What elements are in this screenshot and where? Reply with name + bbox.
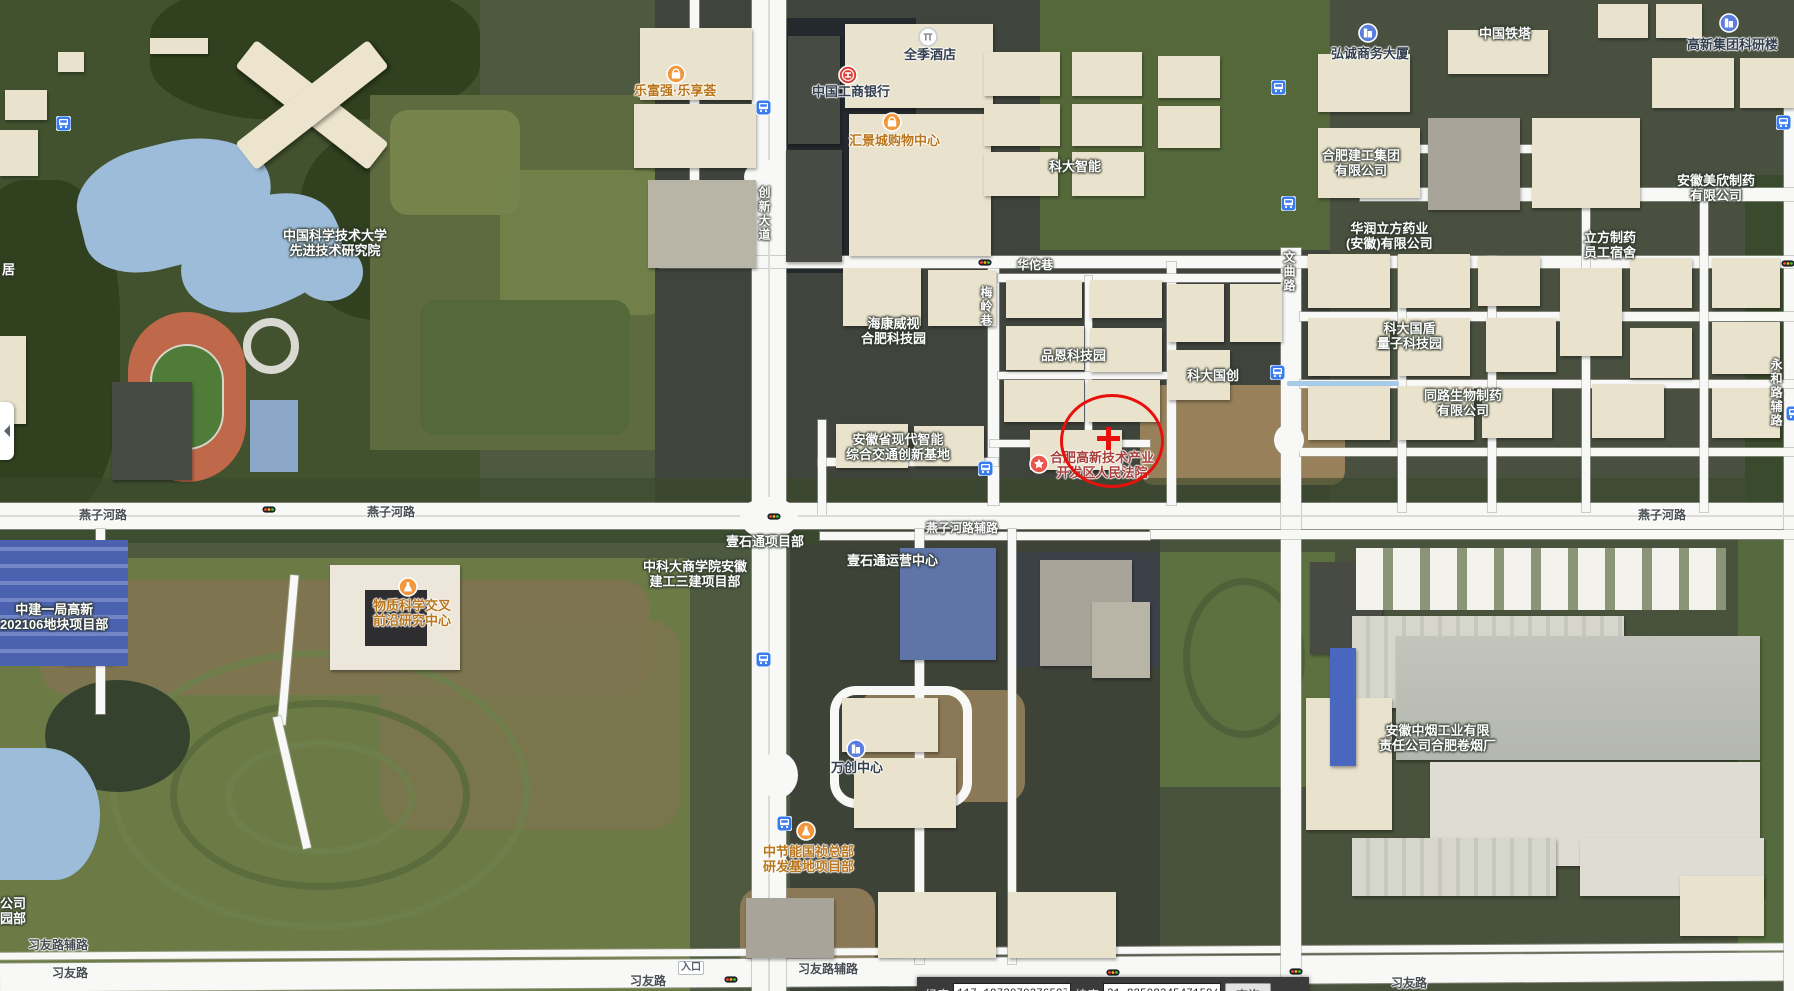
selection-crosshair <box>1106 427 1111 450</box>
collapse-arrow-icon <box>4 425 10 437</box>
shape-map-shape <box>918 27 938 47</box>
shape-bldg <box>984 104 1060 146</box>
label-wuzhi-center[interactable]: 物质科学交叉 前沿研究中心 <box>373 598 451 628</box>
shape-map-shape <box>987 261 990 264</box>
road-yanzihe-left: 燕子河路 <box>79 508 127 523</box>
shape-map-shape <box>781 820 788 823</box>
shape-map-shape <box>1289 968 1303 975</box>
label-yishitong-ops[interactable]: 壹石通运营中心 <box>847 553 938 568</box>
label-tobacco-factory[interactable]: 安徽中烟工业有限 责任公司合肥卷烟厂 <box>1379 723 1496 753</box>
shape-bldg <box>112 382 192 480</box>
shape-map-shape <box>59 125 61 127</box>
shape-map-shape <box>1364 29 1367 38</box>
road-meiling-lane: 梅岭巷 <box>978 286 993 328</box>
shape-map-shape <box>64 125 66 127</box>
road-chuangxin-dadao: 创新大道 <box>756 186 771 242</box>
shape-bldg <box>1230 284 1282 342</box>
coordinate-toolbar: 经度 纬度 查询 <box>917 977 1309 991</box>
road-xiyou-mid: 习友路 <box>630 974 666 989</box>
shape-bldg <box>0 130 38 176</box>
label-wanchuang[interactable]: 万创中心 <box>831 760 883 775</box>
shape-map-shape <box>929 35 931 41</box>
shape-lake <box>0 748 100 880</box>
shape-map-shape <box>262 506 276 513</box>
label-china-tower[interactable]: 中国铁塔 <box>1479 26 1531 41</box>
label-meixin-pharma[interactable]: 安徽美欣制药 有限公司 <box>1677 173 1755 203</box>
shape-bldg <box>1072 52 1142 96</box>
label-tonglu-bio[interactable]: 同路生物制药 有限公司 <box>1424 388 1502 418</box>
shape-map-shape <box>1358 23 1378 43</box>
shape-bldg <box>984 152 1058 196</box>
shape-map-shape <box>978 461 993 476</box>
shape-map-shape <box>764 661 766 663</box>
shape-map-shape <box>398 577 418 597</box>
latitude-label: 纬度 <box>1075 986 1099 991</box>
shape-bldg <box>1318 54 1410 112</box>
shape-map-shape <box>1784 124 1786 126</box>
shape-map-shape <box>1274 89 1276 91</box>
road-xiyou-fulu-mid: 习友路辅路 <box>798 962 858 977</box>
shape-bldg <box>1712 258 1780 308</box>
road-wenqu: 文曲路 <box>1281 251 1296 293</box>
shape-map-shape <box>978 259 992 266</box>
shape-map-shape <box>733 978 736 981</box>
shape-map-shape <box>1289 205 1291 207</box>
shape-map-shape <box>756 652 771 667</box>
shape-map-shape <box>760 656 767 659</box>
satellite-map[interactable]: 经度 纬度 查询 中国科学技术大学 先进技术研究院乐富强·乐享荟中国工商银行全季… <box>0 0 1794 991</box>
shape-bldg <box>1008 892 1116 958</box>
shape-bldg <box>1680 876 1764 936</box>
shape-map-shape <box>1790 262 1793 265</box>
selection-circle <box>1060 394 1164 488</box>
shape-map-shape <box>1115 971 1118 974</box>
shape-bldg <box>1090 280 1162 318</box>
shape-map-shape <box>1783 262 1786 265</box>
shape-bldg <box>1630 328 1692 378</box>
shape-bldg <box>58 52 84 72</box>
shape-map-shape <box>981 470 983 472</box>
shape-road <box>1784 95 1794 991</box>
shape-bldg <box>1740 58 1794 108</box>
shape-bldg <box>1356 548 1726 610</box>
shape-map-shape <box>1285 200 1292 203</box>
shape-bldg <box>1592 384 1664 438</box>
label-pinen-park[interactable]: 品恩科技园 <box>1041 348 1106 363</box>
shape-map-shape <box>724 976 738 983</box>
shape-bldg <box>1168 284 1224 342</box>
shape-terr <box>420 300 630 435</box>
shape-map-shape <box>984 261 987 264</box>
shape-map-shape <box>1108 971 1111 974</box>
shape-map-shape <box>856 747 860 754</box>
label-zhongkeda-biz[interactable]: 中科大商学院安徽 建工三建项目部 <box>643 559 747 589</box>
shape-map-shape <box>767 513 781 520</box>
shape-map-shape <box>1787 262 1790 265</box>
shape-map-shape <box>1278 374 1280 376</box>
label-keda-zhineng[interactable]: 科大智能 <box>1049 159 1101 174</box>
shape-rbulge <box>758 752 798 798</box>
shape-terr <box>225 740 415 855</box>
shape-map-shape <box>1106 969 1120 976</box>
label-yishitong-proj[interactable]: 壹石通项目部 <box>726 534 804 549</box>
shape-map-shape <box>268 508 271 511</box>
shape-map-shape <box>1112 971 1115 974</box>
shape-map-shape <box>888 120 896 126</box>
label-lifang-dorm[interactable]: 立方制药 员工宿舍 <box>1584 230 1636 260</box>
shape-map-shape <box>1273 374 1275 376</box>
shape-court <box>250 400 298 472</box>
shape-bldg <box>150 38 208 54</box>
shape-map-shape <box>845 76 851 78</box>
shape-map-shape <box>264 508 267 511</box>
shape-bldg <box>984 52 1060 96</box>
shape-map-shape <box>1790 410 1794 413</box>
road-xiyou-right: 习友路 <box>1391 976 1427 991</box>
shape-bldg <box>1652 58 1734 108</box>
shape-map-shape <box>1368 31 1372 38</box>
shape-map-shape <box>672 72 680 78</box>
shape-bldg <box>634 104 756 168</box>
label-hefei-jiangong[interactable]: 合肥建工集团 有限公司 <box>1322 148 1400 178</box>
shape-bldg <box>1006 280 1082 318</box>
label-ustc-institute[interactable]: 中国科学技术大学 先进技术研究院 <box>283 228 387 258</box>
road-yanzihe-mid: 燕子河路 <box>367 505 415 520</box>
shape-rline <box>768 0 770 991</box>
shape-road <box>1150 530 1794 539</box>
label-huijing-mall[interactable]: 汇景城购物中心 <box>849 133 940 148</box>
shape-map-shape <box>271 508 274 511</box>
shape-bldg <box>746 898 834 958</box>
label-keda-guodun[interactable]: 科大国盾 量子科技园 <box>1377 321 1442 351</box>
shape-bldg <box>1478 256 1540 306</box>
shape-map-shape <box>785 825 787 827</box>
shape-map-shape <box>986 470 988 472</box>
shape-map-shape <box>1779 124 1781 126</box>
shape-map-shape <box>1729 21 1733 28</box>
label-zhongjieneng[interactable]: 中节能国祯总部 研发基地项目部 <box>763 844 854 874</box>
label-hongcheng-tower[interactable]: 弘诚商务大厦 <box>1331 46 1409 61</box>
shape-bldg <box>1532 118 1640 208</box>
shape-road <box>1281 248 1301 991</box>
shape-road <box>1700 201 1708 512</box>
label-entrance: 入口 <box>678 961 704 975</box>
shape-bldg <box>1158 106 1220 148</box>
shape-map-shape <box>1279 89 1281 91</box>
shape-map-shape <box>773 515 776 518</box>
shape-bldg <box>1072 104 1142 146</box>
panel-collapse-tab[interactable] <box>0 402 14 460</box>
shape-map-shape <box>1291 970 1294 973</box>
label-partial-yuanbu: 园部 <box>0 911 26 926</box>
shape-map-shape <box>838 65 858 85</box>
shape-map-shape <box>1274 369 1281 372</box>
shape-map-shape <box>764 109 766 111</box>
shape-bldg <box>1630 258 1692 308</box>
shape-map-shape <box>1776 115 1791 130</box>
shape-map-shape <box>780 825 782 827</box>
longitude-label: 经度 <box>925 986 949 991</box>
shape-map-shape <box>666 64 686 84</box>
shape-map-shape <box>1295 970 1298 973</box>
shape-bldg <box>1398 254 1470 308</box>
shape-map-shape <box>1270 365 1285 380</box>
shape-bldg <box>878 892 996 958</box>
road-huatuo-lane: 华佗巷 <box>1017 258 1053 273</box>
shape-map-shape <box>925 35 927 41</box>
label-icbc[interactable]: 中国工商银行 <box>812 84 890 99</box>
shape-map-shape <box>776 515 779 518</box>
shape-bldg <box>1560 268 1622 356</box>
shape-map-shape <box>980 261 983 264</box>
label-hikvision[interactable]: 海康威视 合肥科技园 <box>861 316 926 346</box>
label-zhongjian[interactable]: 中建一局高新 202106地块项目部 <box>0 602 108 632</box>
shape-bldg <box>1598 4 1648 38</box>
shape-map-shape <box>846 739 866 759</box>
shape-map-shape <box>1725 19 1728 28</box>
shape-map-shape <box>1271 80 1286 95</box>
shape-bldg <box>1486 318 1556 372</box>
shape-road <box>998 372 1170 379</box>
shape-map-shape <box>852 745 855 754</box>
shape-bldg <box>1308 254 1390 308</box>
shape-map-shape <box>760 104 767 107</box>
shape-map-shape <box>796 821 816 841</box>
shape-bldg <box>1092 602 1150 678</box>
shape-rline <box>0 515 1794 517</box>
label-lefuqiang[interactable]: 乐富强·乐享荟 <box>634 83 716 98</box>
road-yonghe-fulu: 永和路辅路 <box>1768 358 1783 428</box>
label-huarun-lifang[interactable]: 华润立方药业 (安徽)有限公司 <box>1346 221 1433 251</box>
shape-map-shape <box>759 109 761 111</box>
shape-map-shape <box>726 978 729 981</box>
shape-map-shape <box>1781 260 1794 267</box>
latitude-input[interactable] <box>1103 983 1221 991</box>
road-yanzihe-fulu: 燕子河路辅路 <box>926 521 998 536</box>
shape-map-shape <box>756 100 771 115</box>
shape-map-shape <box>1284 205 1286 207</box>
shape-map-shape <box>1298 970 1301 973</box>
shape-terr <box>500 170 665 315</box>
shape-map-shape <box>777 816 792 831</box>
shape-road <box>818 420 826 516</box>
shape-map-shape <box>730 978 733 981</box>
road-yanzihe-right: 燕子河路 <box>1638 508 1686 523</box>
shape-bldg <box>1352 838 1556 896</box>
shape-map-shape <box>919 28 937 46</box>
longitude-input[interactable] <box>953 983 1071 991</box>
shape-map-shape <box>60 120 67 123</box>
shape-map-shape <box>1780 119 1787 122</box>
shape-rbulge <box>1274 424 1304 456</box>
shape-map-shape <box>759 661 761 663</box>
shape-bldg <box>5 90 47 120</box>
shape-map-shape <box>1275 84 1282 87</box>
shape-map-shape <box>1719 13 1739 33</box>
label-keda-guochuang[interactable]: 科大国创 <box>1187 368 1239 383</box>
label-partial-ju: 居 <box>2 262 15 277</box>
shape-map-shape <box>924 33 932 35</box>
road-xiyou-left: 习友路 <box>52 966 88 981</box>
shape-road <box>1300 448 1794 456</box>
road-xiyou-fulu-left: 习友路辅路 <box>28 938 88 953</box>
shape-terr <box>0 478 1794 502</box>
label-quanji-hotel[interactable]: 全季酒店 <box>904 47 956 62</box>
shape-bldg <box>1308 386 1390 440</box>
shape-map-shape <box>56 116 71 131</box>
shape-map-shape <box>882 112 902 132</box>
shape-bldg <box>1656 4 1702 38</box>
shape-bldg <box>648 180 756 268</box>
shape-map-shape <box>769 515 772 518</box>
shape-map-shape <box>982 465 989 468</box>
label-gaoxin-research[interactable]: 高新集团科研楼 <box>1687 37 1778 52</box>
shape-map-shape <box>1789 415 1791 417</box>
query-button[interactable]: 查询 <box>1225 983 1271 991</box>
label-partial-gongsi: 公司 <box>0 896 26 911</box>
shape-map-shape <box>1786 406 1794 421</box>
label-jiaotong-base[interactable]: 安徽省现代智能 综合交通创新基地 <box>846 432 950 462</box>
shape-bldg <box>786 150 842 262</box>
shape-terr <box>243 318 299 374</box>
shape-map-shape <box>1029 454 1049 474</box>
shape-bldg <box>1428 118 1520 210</box>
shape-bldg <box>1158 56 1220 98</box>
shape-map-shape <box>1281 196 1296 211</box>
shape-bldg <box>1330 648 1356 766</box>
